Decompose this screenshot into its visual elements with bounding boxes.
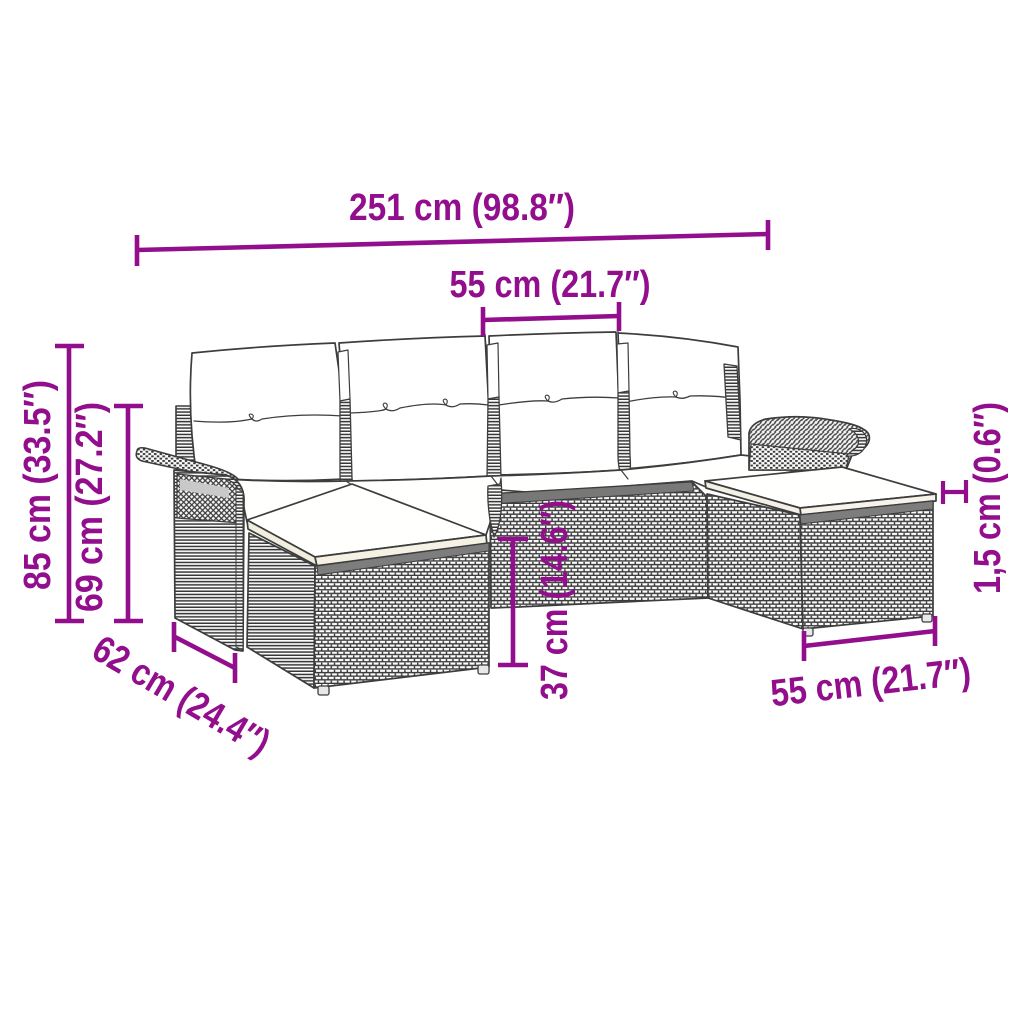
svg-text:251 cm (98.8″): 251 cm (98.8″) bbox=[349, 187, 575, 229]
svg-text:85 cm (33.5″): 85 cm (33.5″) bbox=[17, 380, 59, 590]
svg-text:55 cm (21.7″): 55 cm (21.7″) bbox=[450, 264, 651, 306]
svg-text:37 cm (14.6″): 37 cm (14.6″) bbox=[534, 500, 576, 700]
svg-text:1,5 cm (0.6″): 1,5 cm (0.6″) bbox=[967, 402, 1009, 594]
svg-text:55 cm (21.7″): 55 cm (21.7″) bbox=[769, 651, 973, 715]
svg-text:69 cm (27.2″): 69 cm (27.2″) bbox=[69, 402, 111, 612]
